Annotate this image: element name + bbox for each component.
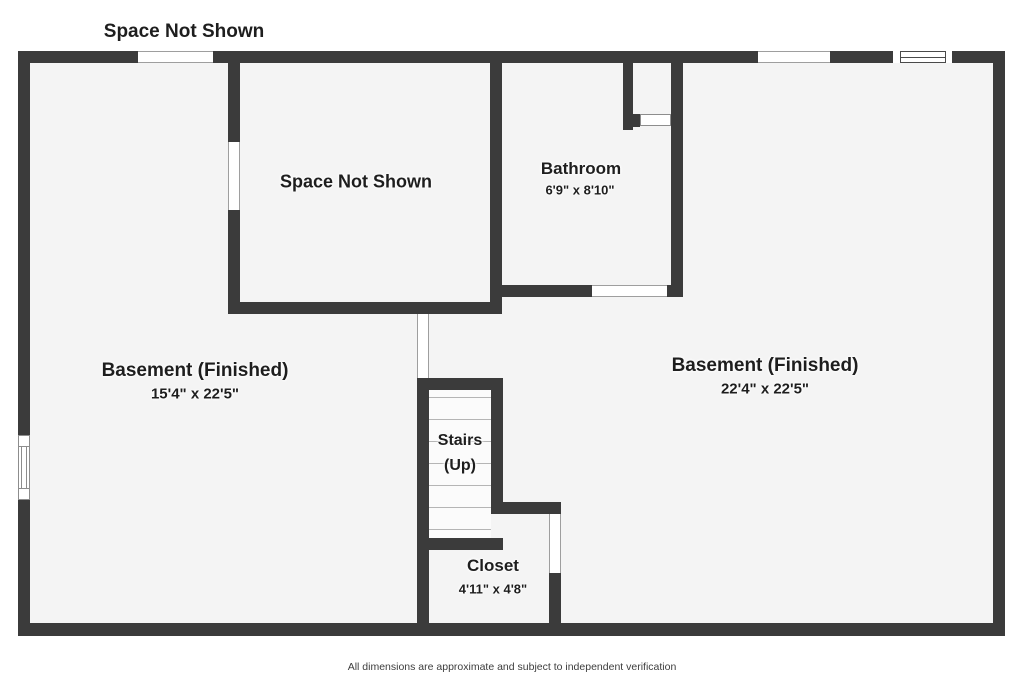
top-window <box>893 51 952 63</box>
wall-closet-right <box>549 573 561 623</box>
stair-tread-line <box>429 419 491 420</box>
wall-bathroom-nook-foot <box>633 114 640 127</box>
wall-exterior-bottom <box>18 623 1005 636</box>
stairs-direction-label: (Up) <box>444 457 476 475</box>
floorplan-canvas: Space Not Shown <box>0 0 1024 677</box>
top-window-frame <box>900 51 946 63</box>
wall-stairs-closet-left <box>417 378 429 623</box>
wall-stairs-bottom <box>417 538 503 550</box>
wall-closet-top <box>491 502 561 514</box>
wall-exterior-right <box>993 51 1005 636</box>
wall-bathroom-right <box>671 63 683 297</box>
wall-sns-room-left-upper <box>228 63 240 142</box>
top-wall-opening-left <box>138 51 213 63</box>
bathroom-dims: 6'9" x 8'10" <box>545 183 614 198</box>
basement-left-dims: 15'4" x 22'5" <box>151 386 239 403</box>
wall-exterior-left <box>18 51 30 636</box>
top-window-glass-line <box>901 57 945 58</box>
stairs-label: Stairs <box>438 432 482 450</box>
left-window <box>18 435 30 500</box>
sns-room-label: Space Not Shown <box>280 172 432 193</box>
bathroom-label: Bathroom <box>541 159 621 179</box>
closet-label: Closet <box>467 556 519 576</box>
bathroom-nook-opening <box>640 114 671 126</box>
wall-sns-room-left-lower <box>228 210 240 314</box>
top-wall-opening-right <box>758 51 830 63</box>
stair-tread-line <box>429 507 491 508</box>
wall-bathroom-nook-stub <box>623 63 633 130</box>
basement-right-dims: 22'4" x 22'5" <box>721 381 809 398</box>
stair-tread-line <box>429 529 491 530</box>
basement-left-label: Basement (Finished) <box>102 360 289 382</box>
basement-right-label: Basement (Finished) <box>672 355 859 377</box>
closet-dims: 4'11" x 4'8" <box>459 582 527 597</box>
wall-sns-room-right <box>490 63 502 314</box>
closet-door-opening <box>549 514 561 573</box>
wall-sns-room-bottom <box>228 302 502 314</box>
floor-area <box>30 63 993 623</box>
stair-tread-line <box>429 485 491 486</box>
left-window-pane <box>21 447 27 488</box>
top-space-not-shown-label: Space Not Shown <box>104 21 264 43</box>
landing-passage-opening <box>417 314 429 378</box>
left-window-sill-bottom <box>19 488 29 489</box>
stair-tread-line <box>429 397 491 398</box>
disclaimer-text: All dimensions are approximate and subje… <box>348 661 677 673</box>
bathroom-door-opening <box>592 285 667 297</box>
wall-stairs-right <box>491 378 503 514</box>
sns-room-door-opening <box>228 142 240 210</box>
